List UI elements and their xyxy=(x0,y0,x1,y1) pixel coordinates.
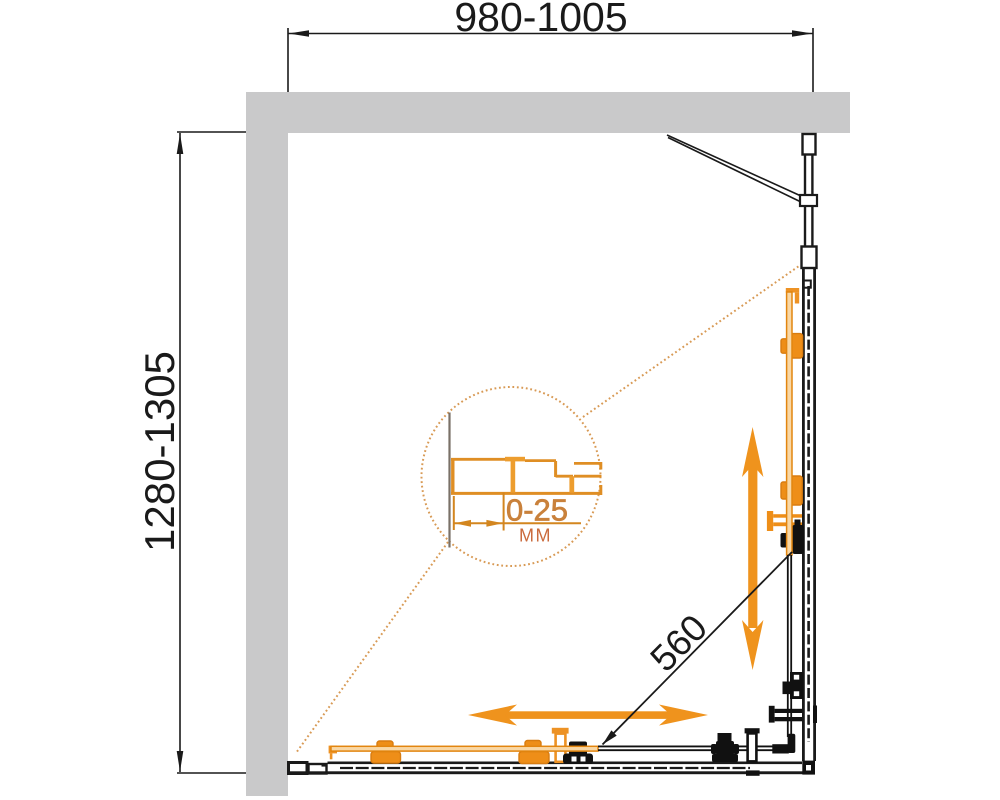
svg-text:980-1005: 980-1005 xyxy=(454,0,627,40)
svg-text:ММ: ММ xyxy=(519,526,552,546)
svg-text:1280-1305: 1280-1305 xyxy=(136,351,183,552)
svg-text:0-25: 0-25 xyxy=(506,493,568,528)
